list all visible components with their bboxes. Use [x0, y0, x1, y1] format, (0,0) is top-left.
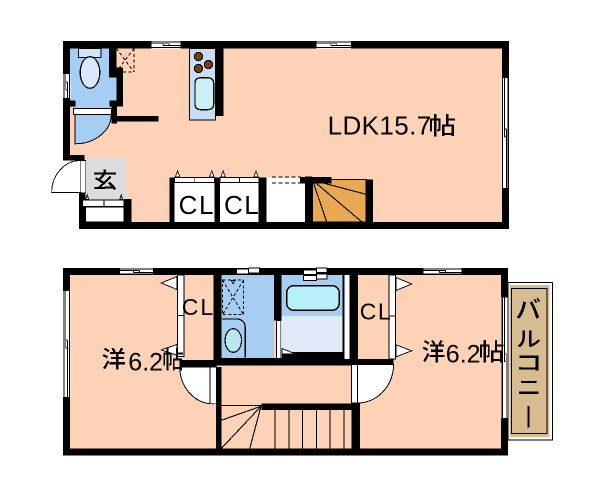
svg-text:CL: CL [360, 299, 392, 325]
svg-text:CL: CL [224, 190, 260, 220]
svg-text:CL: CL [182, 294, 215, 320]
svg-text:CL: CL [179, 190, 215, 220]
svg-text:6.2: 6.2 [128, 348, 163, 376]
svg-text:6.2: 6.2 [446, 340, 481, 368]
svg-text:LDK15.7: LDK15.7 [328, 111, 432, 141]
